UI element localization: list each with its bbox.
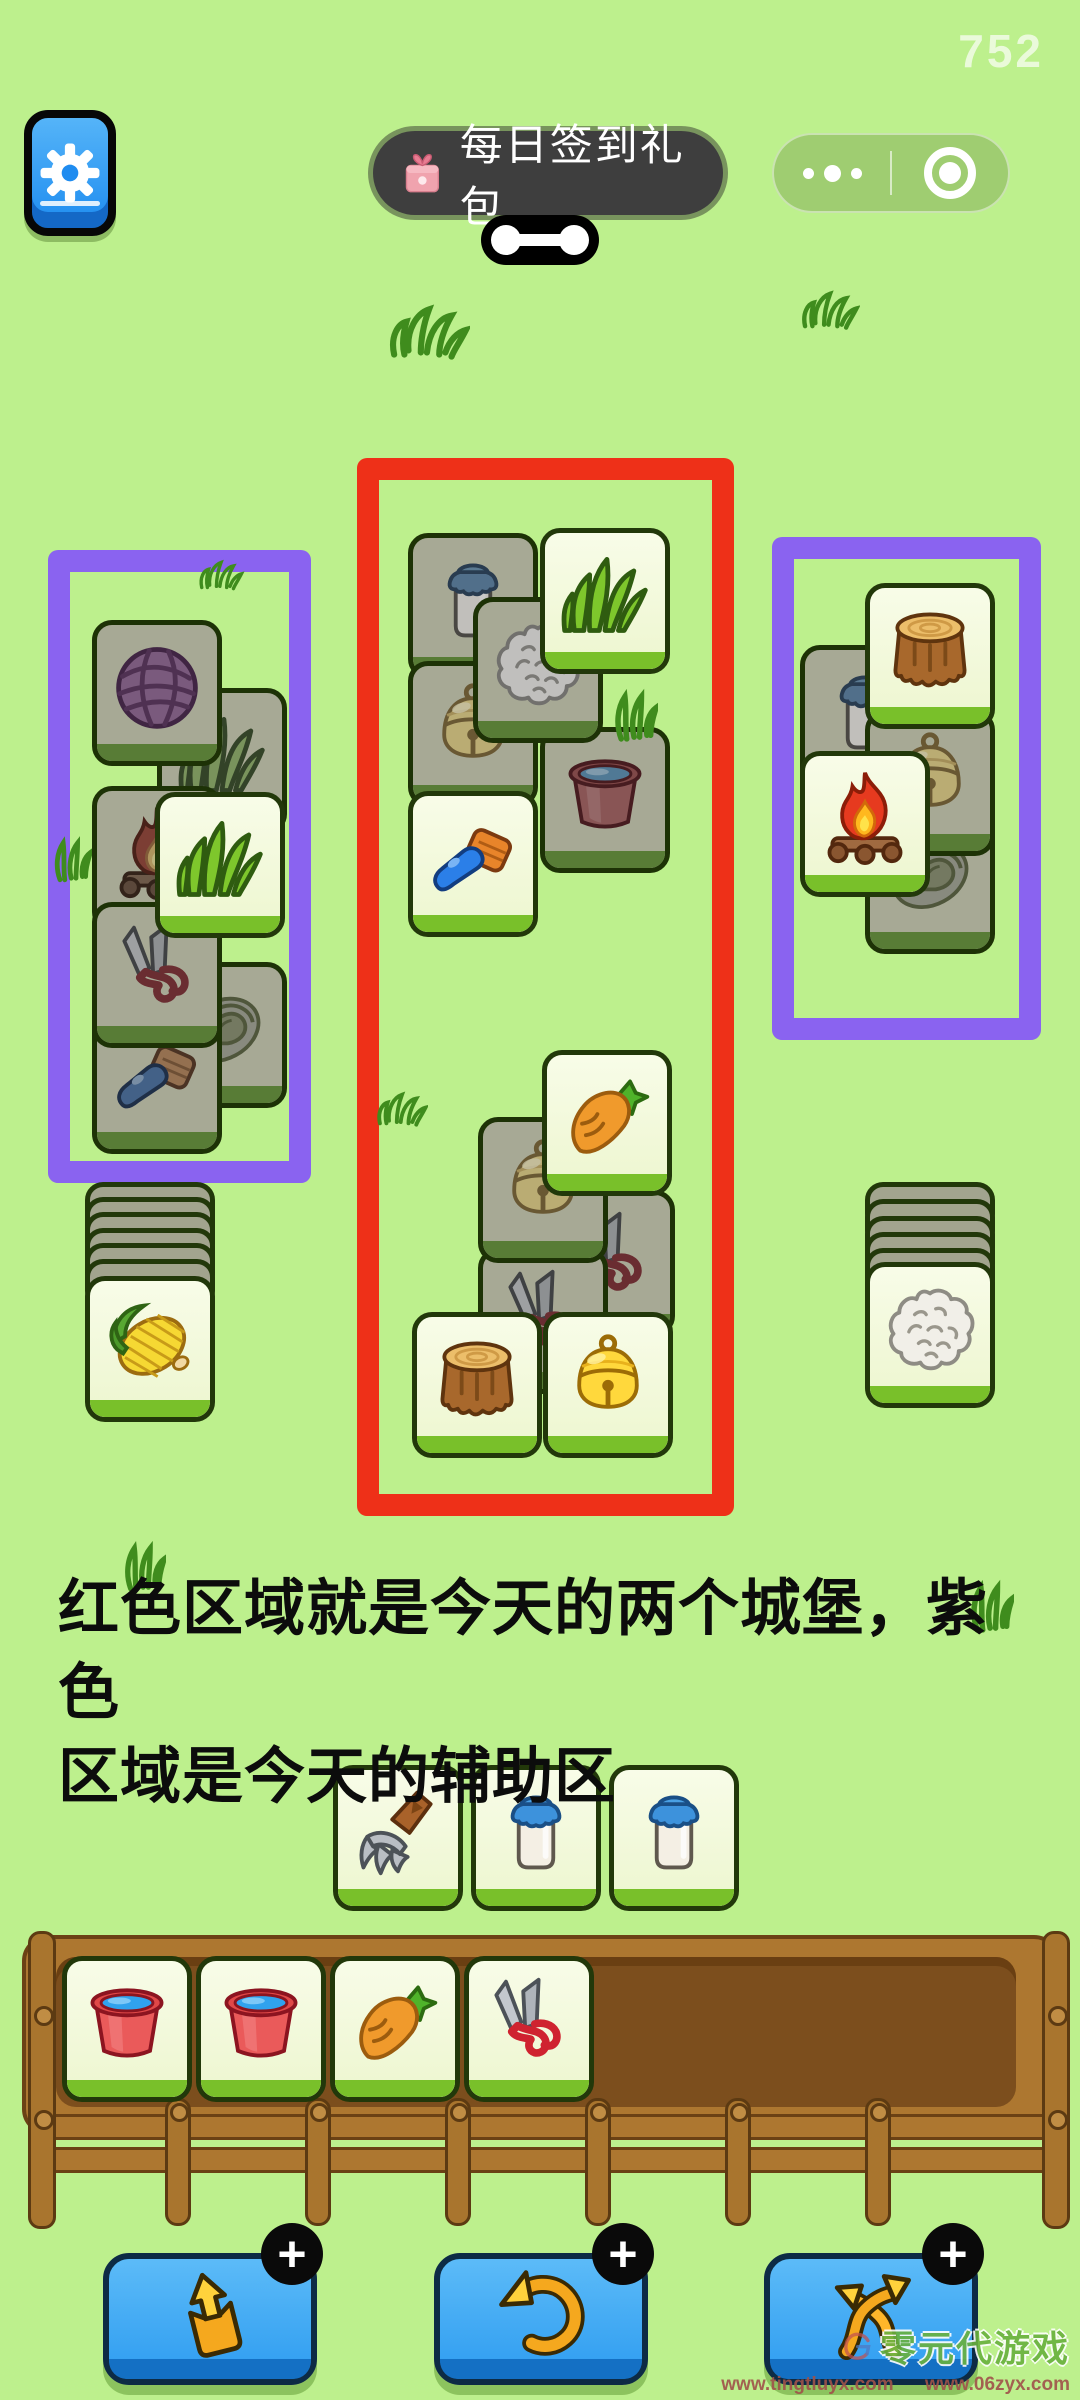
watermark-logo-icon — [840, 2329, 874, 2363]
daily-signin-gift-button[interactable]: 每日签到礼包 — [373, 131, 723, 215]
bell-icon — [560, 1330, 656, 1426]
gear-icon — [38, 141, 102, 205]
fence-post — [165, 2098, 191, 2226]
fence-post — [1042, 1931, 1070, 2229]
fence-post — [865, 2098, 891, 2226]
eject-icon — [163, 2267, 257, 2361]
record-target-icon — [924, 147, 976, 199]
more-dots-icon — [803, 168, 814, 179]
add-more-badge[interactable]: + — [261, 2223, 323, 2285]
gift-icon — [399, 149, 446, 197]
eject-tiles-button[interactable]: + — [103, 2253, 317, 2385]
drag-handle-toggle[interactable] — [481, 215, 599, 265]
annotation-note: 红色区域就是今天的两个城堡，紫色 区域是今天的辅助区 — [58, 1566, 1048, 1818]
fence-post — [445, 2098, 471, 2226]
grass-doodle — [388, 300, 470, 364]
tile-bucket[interactable] — [196, 1956, 326, 2102]
watermark-url-1: www.tingtluyx.com — [721, 2374, 893, 2395]
cotton-icon — [882, 1280, 978, 1376]
stump-icon — [882, 601, 978, 697]
fence-post — [585, 2098, 611, 2226]
scissors-icon — [481, 1974, 577, 2070]
add-more-badge[interactable]: + — [922, 2223, 984, 2285]
bucket-icon — [557, 745, 653, 841]
tile-corn[interactable] — [85, 1276, 215, 1422]
fire-icon — [817, 769, 913, 865]
grass-doodle-icon — [388, 300, 470, 364]
more-dots-icon — [824, 165, 841, 182]
tile-yarn[interactable] — [92, 620, 222, 766]
fence-post — [305, 2098, 331, 2226]
tile-stump[interactable] — [865, 583, 995, 729]
grass-icon — [557, 546, 653, 642]
note-line-2: 区域是今天的辅助区 — [58, 1734, 1048, 1818]
grass-doodle-icon — [800, 288, 860, 332]
fence-post — [725, 2098, 751, 2226]
grass-icon — [172, 810, 268, 906]
add-more-badge[interactable]: + — [592, 2223, 654, 2285]
bucket-icon — [213, 1974, 309, 2070]
more-button[interactable] — [774, 165, 890, 182]
tile-bucket[interactable] — [540, 727, 670, 873]
brush-icon — [425, 809, 521, 905]
settings-button[interactable] — [24, 110, 116, 236]
tile-bell[interactable] — [543, 1312, 673, 1458]
tile-grass[interactable] — [540, 528, 670, 674]
tile-grass[interactable] — [155, 792, 285, 938]
yarn-icon — [109, 638, 205, 734]
tile-bucket[interactable] — [62, 1956, 192, 2102]
tile-brush[interactable] — [408, 791, 538, 937]
watermark-brand: 零元代游戏 — [880, 2320, 1070, 2372]
carrot-icon — [559, 1068, 655, 1164]
handle-right-knob — [559, 225, 589, 255]
undo-icon — [494, 2267, 588, 2361]
settings-button-highlight — [40, 201, 100, 206]
tile-carrot[interactable] — [330, 1956, 460, 2102]
watermark-urls: www.tingtluyx.com www.06zyx.com — [695, 2374, 1070, 2396]
more-dots-icon — [851, 168, 862, 179]
tile-fire[interactable] — [800, 751, 930, 897]
miniprogram-capsule — [772, 133, 1010, 213]
corn-icon — [102, 1294, 198, 1390]
undo-button[interactable]: + — [434, 2253, 648, 2385]
score-counter: 752 — [958, 24, 1044, 78]
fence-post — [28, 1931, 56, 2229]
note-line-1: 红色区域就是今天的两个城堡，紫色 — [58, 1566, 1048, 1734]
watermark: 零元代游戏 www.tingtluyx.com www.06zyx.com — [695, 2320, 1070, 2396]
close-minimize-button[interactable] — [892, 147, 1008, 199]
stump-icon — [429, 1330, 525, 1426]
grass-doodle — [800, 288, 860, 332]
carrot-icon — [347, 1974, 443, 2070]
watermark-url-2: www.06zyx.com — [925, 2374, 1070, 2395]
tile-scissors[interactable] — [464, 1956, 594, 2102]
bucket-icon — [79, 1974, 175, 2070]
tile-cotton[interactable] — [865, 1262, 995, 1408]
tile-stump[interactable] — [412, 1312, 542, 1458]
tile-carrot[interactable] — [542, 1050, 672, 1196]
